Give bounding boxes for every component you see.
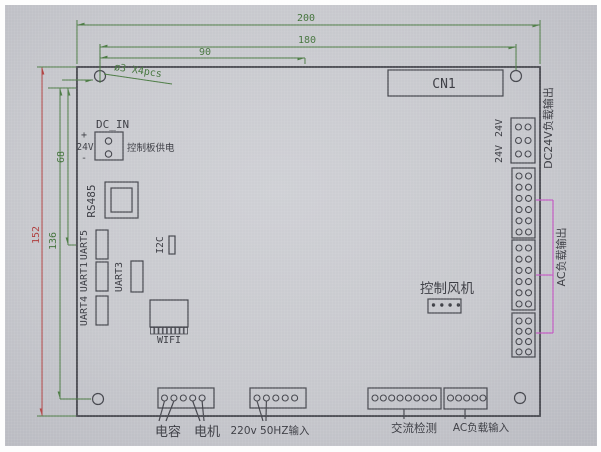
dc-in-24v-label: 24V: [76, 142, 93, 153]
ac-load-input-pins: [448, 395, 486, 401]
uart5-header: UART5: [79, 230, 108, 260]
board-outline: [77, 67, 540, 416]
dc24v-pin-label-b: 24V: [494, 145, 505, 163]
dc24v-pin-label-a: 24V: [494, 119, 505, 137]
dc-in-pins: [105, 138, 111, 157]
dc24v-output-pins-col1: [516, 124, 522, 157]
ac-load-input-label: AC负载输入: [453, 421, 510, 434]
ac-output-1-pins-col2: [526, 173, 532, 235]
fan-pins: [432, 303, 460, 306]
dim-180-label: 180: [298, 35, 316, 46]
dc-in-minus-label: -: [81, 153, 87, 164]
dim-68-label: 68: [56, 151, 67, 163]
uart3-header: UART3: [114, 261, 143, 292]
uart1-header: UART1: [79, 262, 108, 292]
rs485-label: RS485: [85, 184, 98, 217]
mounting-hole-bottom-right: [515, 393, 526, 404]
mains-input-pins: [254, 395, 298, 401]
dc-in-label: DC_IN: [96, 118, 129, 131]
dc-in-connector: DC_IN + 24V - 控制板供电: [76, 118, 175, 164]
uart3-label: UART3: [114, 262, 125, 292]
ac-output-1-pins-col1: [516, 173, 522, 235]
ac-output-3-pins-col2: [526, 318, 532, 355]
photographed-cad-drawing: 200 180 90 ø3 X4pcs 152 136 68 CN1: [5, 5, 597, 446]
ac-detect-pins: [372, 395, 436, 401]
hole-note-label: ø3 X4pcs: [113, 62, 162, 80]
rs485-connector: RS485: [85, 182, 138, 218]
dim-200-label: 200: [297, 13, 315, 24]
hole-size-note: ø3 X4pcs: [62, 62, 172, 84]
cap-motor-connector: 电容 电机: [155, 388, 220, 440]
dim-68: 68: [56, 88, 76, 245]
uart4-header: UART4: [79, 296, 108, 326]
dc24v-output-label: DC24V负载输出: [541, 87, 555, 169]
ac-output-label: AC负载输出: [554, 227, 568, 286]
dim-152-label: 152: [31, 226, 42, 244]
ac-output-2-pins-col1: [516, 245, 522, 307]
cn1-connector: CN1: [388, 70, 503, 96]
capacitor-label: 电容: [155, 424, 181, 440]
mounting-hole-top-right: [511, 71, 522, 82]
dc24v-output-pins-col2: [525, 124, 531, 157]
ac-output-connector-3: [512, 313, 535, 357]
ac-load-input-connector: AC负载输入: [444, 388, 510, 434]
wifi-pins: [151, 328, 188, 335]
dc24v-output-connector: 24V 24V DC24V负载输出: [494, 87, 555, 169]
mounting-hole-bottom-left: [93, 394, 104, 405]
ac-detect-label: 交流检测: [391, 421, 437, 435]
dim-136-label: 136: [48, 232, 59, 250]
uart1-label: UART1: [79, 262, 90, 292]
wifi-module: WIFI: [150, 300, 188, 346]
mains-input-connector: 220v 50HZ输入: [230, 388, 310, 437]
fan-control-connector: 控制风机: [420, 281, 474, 313]
fan-control-label: 控制风机: [420, 281, 474, 297]
ac-output-2-pins-col2: [526, 245, 532, 307]
ac-output-connector-2: [512, 240, 535, 310]
ac-output-3-pins-col1: [516, 318, 522, 355]
board-power-label: 控制板供电: [127, 142, 175, 154]
cn1-label: CN1: [432, 77, 455, 92]
mains-input-label: 220v 50HZ输入: [230, 424, 310, 437]
uart5-label: UART5: [79, 230, 90, 260]
ac-detect-connector: 交流检测: [368, 388, 441, 435]
pcb-dimension-drawing: 200 180 90 ø3 X4pcs 152 136 68 CN1: [5, 5, 597, 446]
wifi-label: WIFI: [157, 335, 181, 346]
dim-180: 180: [100, 35, 516, 70]
dc-in-plus-label: +: [81, 130, 87, 141]
uart4-label: UART4: [79, 296, 90, 326]
motor-label: 电机: [194, 425, 220, 440]
i2c-label: I2C: [155, 236, 166, 253]
ac-output-connector-1: [512, 168, 535, 238]
i2c-header: I2C: [155, 236, 175, 254]
cap-motor-pins: [162, 395, 206, 401]
dim-90-label: 90: [199, 47, 211, 58]
